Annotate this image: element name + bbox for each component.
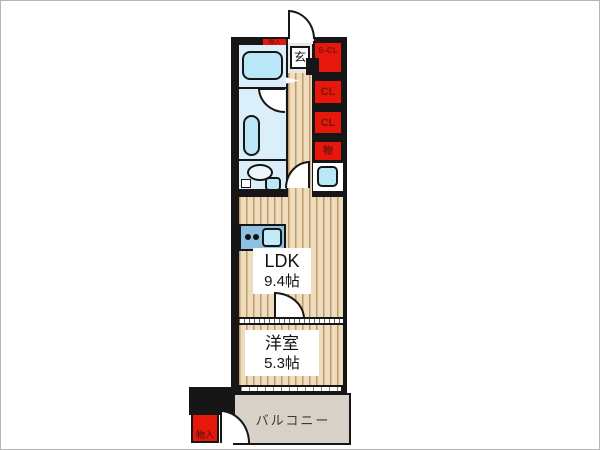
wall-notch [306,58,319,75]
floorplan-canvas: バルコニー 物入 物入 玄 S-CL CL CL 物 [0,0,600,450]
closet-upper-label: CL [321,86,336,98]
entrance-door-swing-icon [288,10,315,39]
ldk-label-box: LDK 9.4帖 [253,248,311,294]
bedroom-size: 5.3帖 [245,354,319,373]
laundry-counter-icon [242,51,283,80]
closet-lower: CL [313,110,343,135]
closet-lower-label: CL [321,117,336,129]
ldk-size: 9.4帖 [253,272,311,291]
stove-burner-icon [245,234,251,240]
toilet-basin-icon [265,177,281,191]
storage-mono: 物 [313,140,343,162]
bedroom-name: 洋室 [245,333,319,354]
closet-upper: CL [313,79,343,105]
bedroom-label-box: 洋室 5.3帖 [245,330,319,376]
balcony-label: バルコニー [245,410,341,429]
shoes-closet-label: S-CL [318,45,338,55]
genkan-label: 玄 [294,50,306,64]
storage-mono-label: 物 [323,146,333,157]
wash-basin-icon [317,166,338,187]
balcony-window [241,385,341,393]
balcony-storage: 物入 [191,413,219,443]
kitchen-sink-icon [262,228,282,247]
ldk-name: LDK [253,251,311,272]
sliding-door-divider [239,317,343,325]
balcony-storage-label: 物入 [196,430,214,440]
stove-burner-icon [253,234,259,240]
bathtub-icon [243,115,260,156]
toilet-tank-icon [241,179,251,188]
